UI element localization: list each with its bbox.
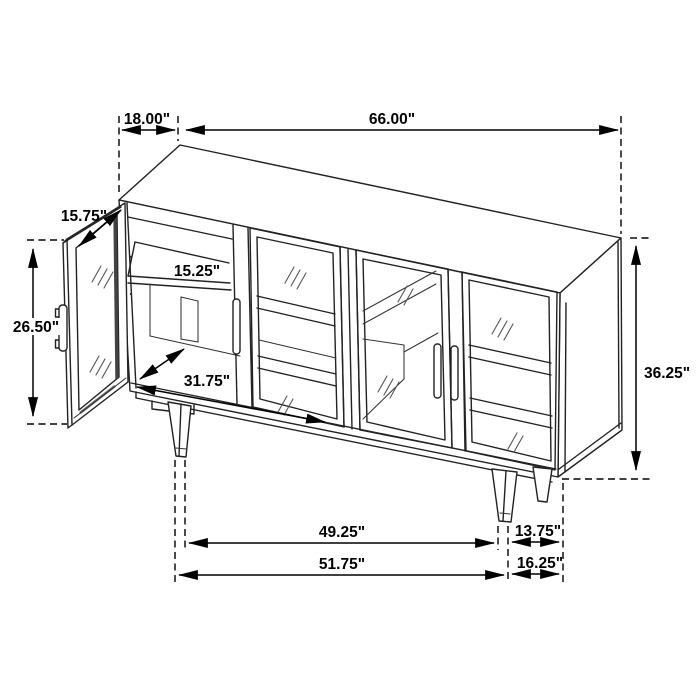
dim-label-door-height: 26.50"	[13, 319, 59, 336]
dim-label-shelf-depth: 15.25"	[174, 263, 220, 280]
door-4-handle	[451, 346, 458, 400]
dimension-overall-width: 66.00"	[186, 111, 618, 130]
dimension-leg-span-outer: 51.75"	[179, 556, 504, 575]
open-glass-door	[56, 203, 129, 428]
leg-front-right	[492, 469, 517, 522]
leg-back-right	[533, 467, 552, 502]
diagram-canvas: 18.00" 66.00" 15.75" 26.50" 15.25" 31.75…	[0, 0, 700, 700]
dim-label-interior-width: 31.75"	[184, 373, 230, 390]
dim-label-side-depth: 16.25"	[517, 555, 563, 572]
dimension-overall-height: 36.25"	[636, 246, 690, 470]
dimension-leg-side-span: 13.75"	[512, 523, 561, 542]
dim-label-leg-span-inner: 49.25"	[319, 524, 365, 541]
dim-label-door-width: 15.75"	[61, 208, 107, 225]
dim-label-overall-width: 66.00"	[369, 111, 415, 128]
dimension-side-depth: 16.25"	[512, 555, 563, 574]
dimension-top-depth: 18.00"	[122, 111, 175, 130]
dim-label-overall-height: 36.25"	[644, 365, 690, 382]
dim-label-leg-span-outer: 51.75"	[319, 556, 365, 573]
dimension-door-height: 26.50"	[10, 249, 62, 416]
dim-label-leg-side-span: 13.75"	[515, 523, 561, 540]
door-2-handle	[233, 299, 240, 354]
dimension-shelf-depth: 15.25"	[174, 263, 220, 280]
cabinet-drawing	[56, 145, 623, 522]
dim-label-top-depth: 18.00"	[124, 111, 170, 128]
dimension-leg-span-inner: 49.25"	[189, 524, 494, 543]
door-3-handle	[434, 344, 441, 398]
leg-front-left	[168, 402, 191, 457]
sideboard-dimension-diagram: 18.00" 66.00" 15.75" 26.50" 15.25" 31.75…	[0, 0, 700, 700]
